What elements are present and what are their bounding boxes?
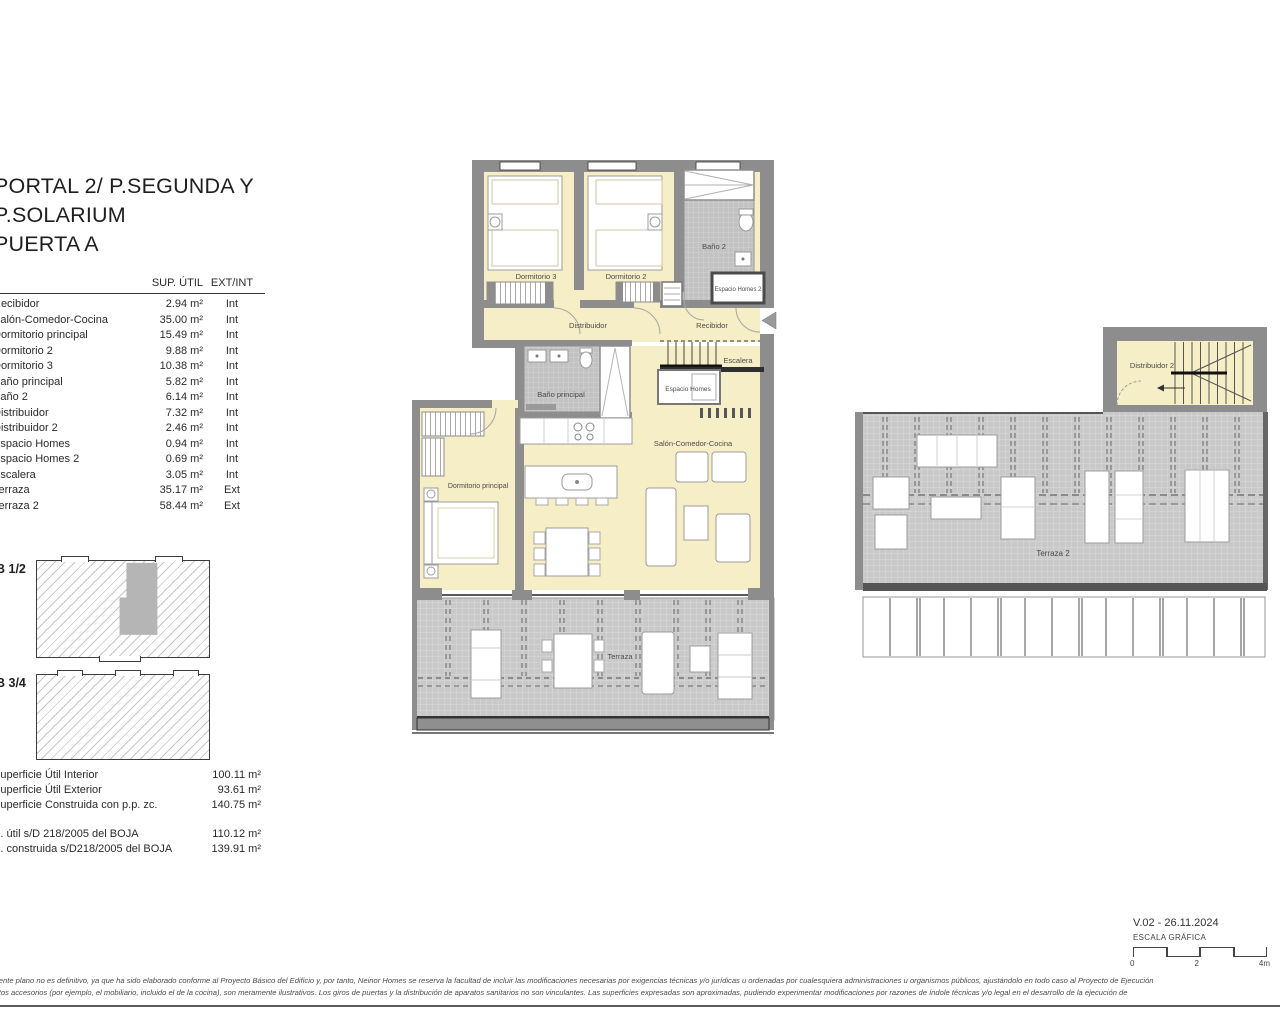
summary-name: Superficie Útil Exterior — [0, 783, 193, 798]
table-row: Baño 26.14 m²Int — [0, 390, 265, 406]
room-name: Dormitorio principal — [0, 328, 141, 344]
table-row: Dormitorio 310.38 m²Int — [0, 359, 265, 375]
shower — [600, 346, 630, 418]
room-type: Ext — [203, 499, 261, 515]
label-bano-principal: Baño principal — [537, 390, 585, 399]
keyplan-2-label: B 3/4 — [0, 676, 26, 690]
kitchen-counter — [520, 418, 632, 444]
table-row: Espacio Homes 20.69 m²Int — [0, 452, 265, 468]
terraza2-left-wall — [855, 412, 863, 590]
parapet — [417, 718, 769, 730]
room-area: 0.94 m² — [141, 437, 203, 453]
drawing-version: V.02 - 26.11.2024 — [1133, 917, 1219, 929]
summary-name: S. construida s/D218/2005 del BOJA — [0, 842, 193, 857]
label-dormitorio-principal: Dormitorio principal — [448, 483, 509, 490]
terraza2-parapet — [863, 583, 1267, 591]
table-row: Dormitorio principal15.49 m²Int — [0, 328, 265, 344]
floorplan-solarium: Distribuidor 2 Terraza 2 — [855, 325, 1275, 665]
dining-set — [534, 528, 600, 576]
keyplan-notch — [99, 656, 141, 662]
summary-row: S. útil s/D 218/2005 del BOJA110.12 m² — [0, 827, 265, 842]
room-area: 7.32 m² — [141, 406, 203, 422]
keyplan-notch — [173, 670, 199, 676]
floorplan-main: Dormitorio 3 Dormitorio 2 Baño 2 Espacio… — [408, 152, 780, 742]
table-row: Terraza35.17 m²Ext — [0, 483, 265, 499]
table-row: Dormitorio 29.88 m²Int — [0, 344, 265, 360]
room-type: Int — [203, 390, 261, 406]
room-area: 2.94 m² — [141, 297, 203, 313]
areas-table-header: SUP. ÚTIL EXT/INT — [0, 276, 265, 291]
page-title: PORTAL 2/ P.SEGUNDA Y P.SOLARIUM PUERTA … — [0, 172, 254, 259]
room-name: Dormitorio 3 — [0, 359, 141, 375]
room-area: 5.82 m² — [141, 375, 203, 391]
plan-bottom-edge — [412, 732, 774, 734]
scale-tick-0: 0 — [1130, 959, 1134, 968]
areas-table: SUP. ÚTIL EXT/INT Recibidor2.94 m²Int Sa… — [0, 276, 265, 514]
summary-name: S. útil s/D 218/2005 del BOJA — [0, 827, 193, 842]
summary-value: 139.91 m² — [193, 842, 261, 857]
room-area: 15.49 m² — [141, 328, 203, 344]
room-name: Dormitorio 2 — [0, 344, 141, 360]
room-name: Distribuidor 2 — [0, 421, 141, 437]
room-name: Baño 2 — [0, 390, 141, 406]
table-row: Distribuidor 22.46 m²Int — [0, 421, 265, 437]
graphic-scale-bar — [1133, 947, 1267, 957]
table-row: Baño principal5.82 m²Int — [0, 375, 265, 391]
keyplan-notch — [115, 670, 141, 676]
summary-row: S. construida s/D218/2005 del BOJA139.91… — [0, 842, 265, 857]
scale-segment — [1200, 947, 1234, 957]
label-terraza2: Terraza 2 — [1036, 549, 1070, 558]
label-dormitorio2: Dormitorio 2 — [606, 272, 647, 281]
room-type: Int — [203, 468, 261, 484]
scale-ticks: 0 2 4m — [1130, 959, 1270, 968]
label-terraza: Terraza — [607, 652, 633, 661]
label-distribuidor2: Distribuidor 2 — [1130, 361, 1174, 370]
room-name: Escalera — [0, 468, 141, 484]
summary-value: 110.12 m² — [193, 827, 261, 842]
room-name: Distribuidor — [0, 406, 141, 422]
disclaimer: presente plano no es definitivo, ya que … — [0, 975, 1280, 999]
summary-name: Superficie Construida con p.p. zc. — [0, 798, 193, 813]
label-escalera: Escalera — [723, 356, 753, 365]
room-area: 0.69 m² — [141, 452, 203, 468]
label-espacio-homes2: Espacio Homes 2 — [714, 287, 762, 293]
room-name: Recibidor — [0, 297, 141, 313]
room-area: 9.88 m² — [141, 344, 203, 360]
bed-dormitorio2 — [588, 176, 662, 270]
summary-row: Superficie Útil Interior100.11 m² — [0, 768, 265, 783]
toilet — [739, 213, 753, 231]
bed-principal — [424, 488, 498, 578]
disclaimer-line-1: presente plano no es definitivo, ya que … — [0, 975, 1280, 987]
room-type: Int — [203, 297, 261, 313]
title-line-1: PORTAL 2/ P.SEGUNDA Y — [0, 172, 254, 201]
keyplan-notch — [155, 556, 183, 562]
scale-tick-2: 2 — [1194, 959, 1198, 968]
summary-block: Superficie Útil Interior100.11 m² Superf… — [0, 768, 265, 857]
keyplan-notch — [61, 556, 89, 562]
room-name: Baño principal — [0, 375, 141, 391]
summary-value: 100.11 m² — [193, 768, 261, 783]
room-type: Int — [203, 328, 261, 344]
scale-segment — [1167, 947, 1201, 957]
keyplan-1-label: B 1/2 — [0, 562, 26, 576]
solarium-railing — [863, 597, 1265, 657]
table-row: Salón-Comedor-Cocina35.00 m²Int — [0, 313, 265, 329]
sheet-border-bottom — [0, 1005, 1280, 1007]
room-type: Int — [203, 421, 261, 437]
keyplan-highlighted-unit — [37, 561, 209, 657]
label-salon: Salón-Comedor-Cocina — [654, 439, 733, 448]
terraza2-right-wall — [1263, 412, 1268, 590]
room-area: 10.38 m² — [141, 359, 203, 375]
scale-segment — [1234, 947, 1268, 957]
room-type: Int — [203, 375, 261, 391]
room-area: 6.14 m² — [141, 390, 203, 406]
room-name: Espacio Homes — [0, 437, 141, 453]
label-distribuidor: Distribuidor — [569, 321, 607, 330]
summary-value: 140.75 m² — [193, 798, 261, 813]
summary-row: Superficie Útil Exterior93.61 m² — [0, 783, 265, 798]
room-area: 2.46 m² — [141, 421, 203, 437]
windows — [500, 162, 740, 170]
header-sup-util: SUP. ÚTIL — [141, 276, 203, 291]
room-type: Int — [203, 437, 261, 453]
summary-value: 93.61 m² — [193, 783, 261, 798]
header-ext-int: EXT/INT — [203, 276, 261, 291]
table-row: Distribuidor7.32 m²Int — [0, 406, 265, 422]
room-type: Int — [203, 344, 261, 360]
table-row: Recibidor2.94 m²Int — [0, 297, 265, 313]
scale-segment — [1133, 947, 1167, 957]
room-type: Int — [203, 359, 261, 375]
room-type: Int — [203, 313, 261, 329]
room-name: Salón-Comedor-Cocina — [0, 313, 141, 329]
terraza2-top-edge — [863, 412, 1103, 414]
table-row: Escalera3.05 m²Int — [0, 468, 265, 484]
room-type: Int — [203, 406, 261, 422]
scale-label: ESCALA GRÁFICA — [1133, 933, 1206, 942]
room-name: Terraza 2 — [0, 499, 141, 515]
room-area: 58.44 m² — [141, 499, 203, 515]
label-dormitorio3: Dormitorio 3 — [516, 272, 557, 281]
table-row: Espacio Homes0.94 m²Int — [0, 437, 265, 453]
summary-name: Superficie Útil Interior — [0, 768, 193, 783]
room-name: Terraza — [0, 483, 141, 499]
room-type: Int — [203, 452, 261, 468]
floorplan-sheet: { "title": {"line1": "PORTAL 2/ P.SEGUND… — [0, 0, 1280, 1024]
room-area: 3.05 m² — [141, 468, 203, 484]
room-name: Espacio Homes 2 — [0, 452, 141, 468]
keyplan-2 — [36, 674, 210, 760]
summary-row: Superficie Construida con p.p. zc.140.75… — [0, 798, 265, 813]
keyplan-1 — [36, 560, 210, 658]
keyplan-notch — [57, 670, 83, 676]
room-area: 35.00 m² — [141, 313, 203, 329]
table-row: Terraza 258.44 m²Ext — [0, 499, 265, 515]
header-room — [0, 276, 141, 291]
disclaimer-line-2: mentos accesorios (por ejemplo, el mobil… — [0, 987, 1280, 999]
room-area: 35.17 m² — [141, 483, 203, 499]
bed-dormitorio3 — [488, 176, 562, 270]
label-recibidor: Recibidor — [696, 321, 728, 330]
label-espacio-homes: Espacio Homes — [665, 386, 711, 393]
scale-tick-4: 4m — [1259, 959, 1270, 968]
room-type: Ext — [203, 483, 261, 499]
table-rule — [0, 293, 265, 294]
label-bano2: Baño 2 — [702, 242, 726, 251]
title-line-3: PUERTA A — [0, 230, 254, 259]
title-line-2: P.SOLARIUM — [0, 201, 254, 230]
